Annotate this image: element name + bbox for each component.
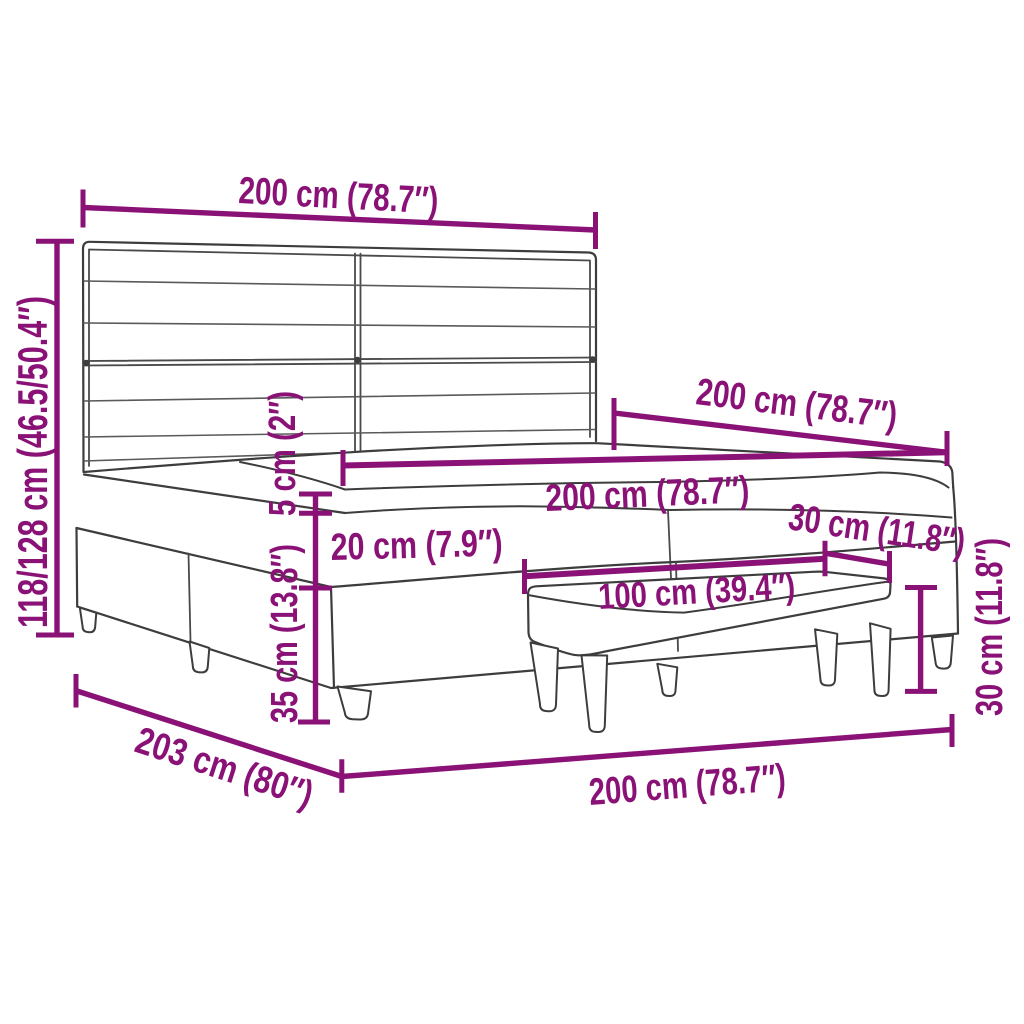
svg-text:118/128 cm (46.5/50.4″): 118/128 cm (46.5/50.4″) bbox=[9, 296, 56, 628]
svg-text:203 cm (80″): 203 cm (80″) bbox=[130, 720, 318, 817]
svg-text:200 cm (78.7″): 200 cm (78.7″) bbox=[587, 757, 787, 814]
svg-text:30 cm (11.8″): 30 cm (11.8″) bbox=[969, 538, 1011, 716]
svg-text:35 cm (13.8″): 35 cm (13.8″) bbox=[264, 544, 306, 723]
svg-text:200 cm (78.7″): 200 cm (78.7″) bbox=[545, 469, 751, 520]
svg-text:20 cm (7.9″): 20 cm (7.9″) bbox=[330, 523, 503, 569]
svg-text:5 cm (2″): 5 cm (2″) bbox=[262, 391, 304, 516]
